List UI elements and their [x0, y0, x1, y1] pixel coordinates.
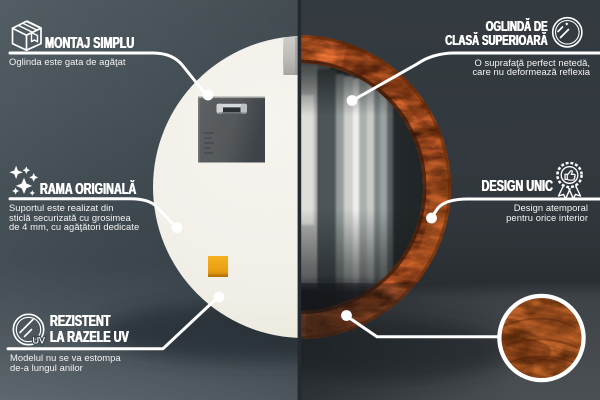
svg-text:UV: UV: [33, 336, 46, 346]
